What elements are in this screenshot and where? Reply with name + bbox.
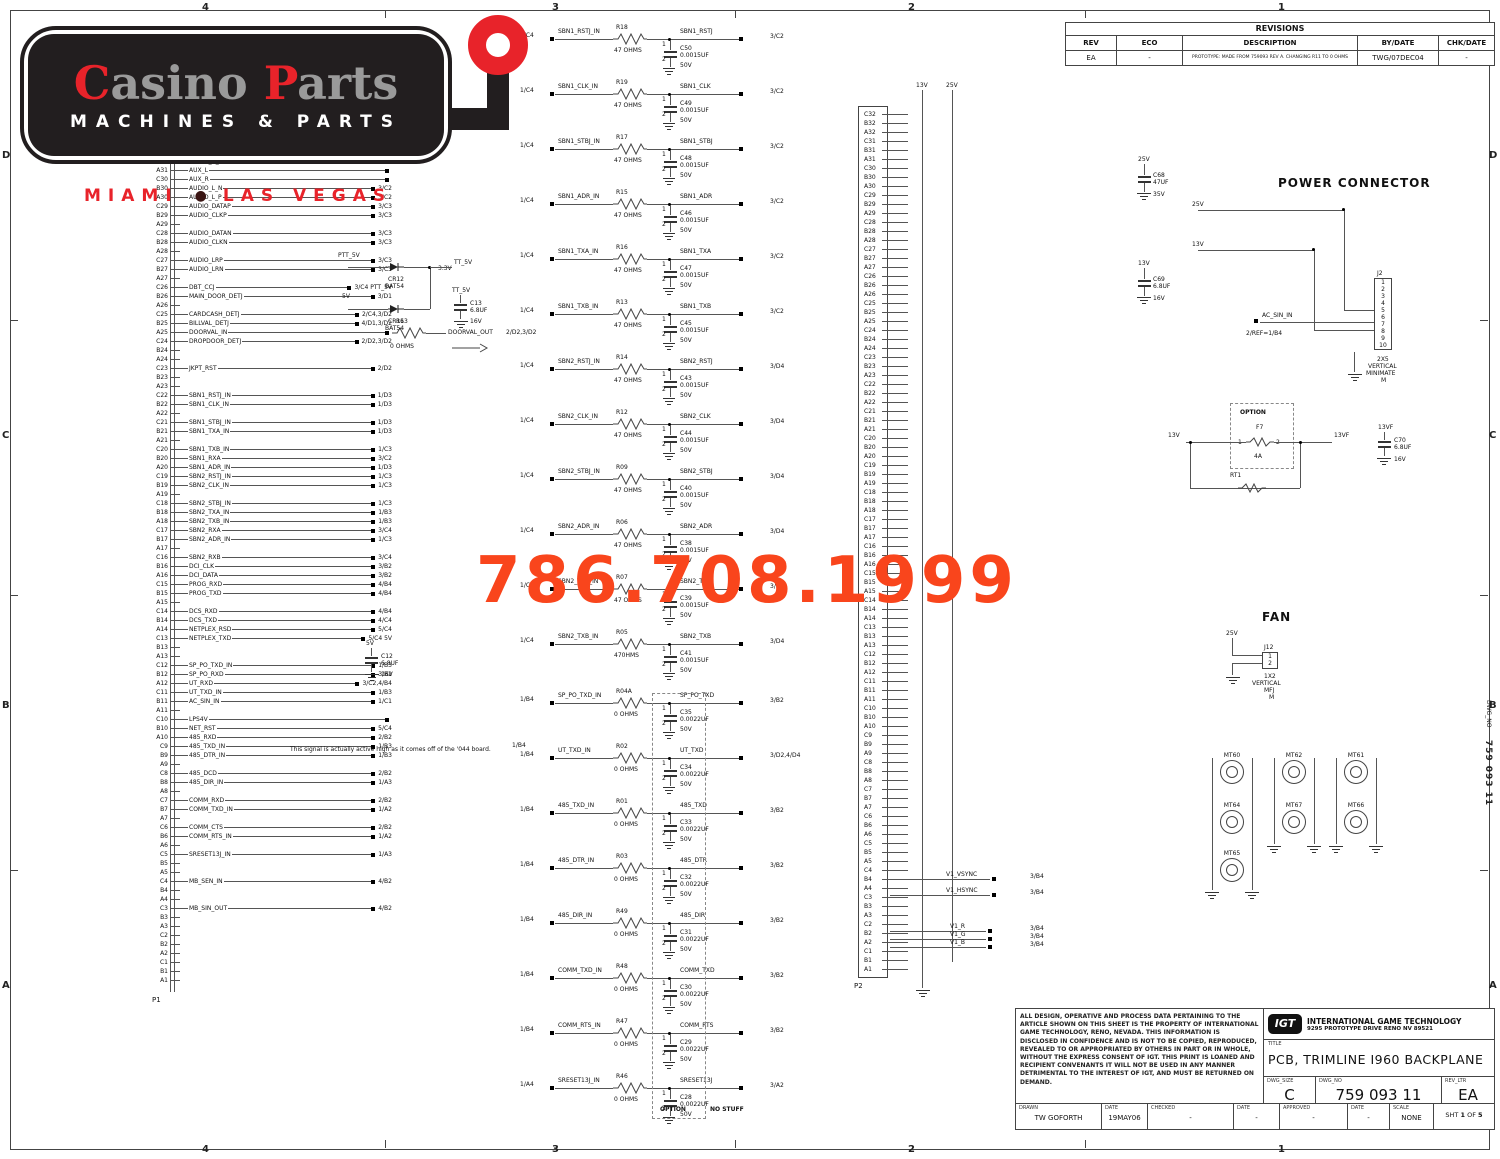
zone-tick [10,870,18,871]
wire [180,260,188,261]
pin-number: 6 [1375,314,1391,321]
wire [555,1033,613,1034]
resistor-ref: R09 [616,464,628,471]
pad-icon [739,1086,743,1090]
signal-label: DCI_CLK [188,563,215,570]
pin-number: 1 [662,426,666,433]
zone-ref: 1/A3 [378,779,392,786]
resistor-icon [613,308,647,320]
pin-label: C10 [150,716,168,723]
pin-row: B2 [150,940,392,949]
pin-label: B18 [862,498,882,505]
zone-ref: 1/D3 [378,428,392,435]
cap-value: 0.0015UF [680,437,709,444]
pin-label: C32 [862,111,882,118]
pad-icon [371,430,375,434]
cap-voltage: 16V [381,671,393,678]
zone-ref: 1/B4 [520,696,534,703]
pin-row: C1 [150,958,392,967]
cap-voltage: 35V [1153,191,1165,198]
wire [170,404,180,405]
pin-label: A16 [150,572,168,579]
wire [180,368,188,369]
wire [882,537,908,538]
signal-wire: SBN2_RXB 3/C4 [180,553,392,562]
signal-label: DOORVAL_OUT [448,329,493,336]
ground-icon [454,321,468,330]
pin-label: B21 [150,428,168,435]
bullet-icon: ● [195,188,207,204]
pad-icon [550,1031,554,1035]
signal-label: DCS_TXD [188,617,218,624]
wire [170,602,180,603]
signal-label: AUDIO_LRP [188,257,224,264]
pin-label: C27 [862,246,882,253]
pin-label: A22 [150,410,168,417]
wire [180,593,188,594]
zone-ref: 3/B2 [770,807,784,814]
zone-ref: 1/D3 [378,392,392,399]
zone-ref: 3/B2 [770,917,784,924]
cap-ref: C50 [680,45,692,52]
wire [670,95,671,105]
pad-icon [550,976,554,980]
signal-label: AC_SIN_IN [188,698,221,705]
wire [180,170,188,171]
signal-label: SBN1_CLK_IN [558,83,598,90]
wire [219,611,372,612]
diode-ref: CR12 [388,276,404,283]
pin-label: C5 [862,840,882,847]
pin-label: A19 [150,491,168,498]
pin-label: C22 [862,381,882,388]
pin-label: C3 [150,905,168,912]
wire [180,233,188,234]
signal-wire: AC_SIN_IN 1/C1 [180,697,392,706]
pin-row: A14 NETPLEX_RSD 5/C4 [150,625,392,634]
pin-row: A27 [150,274,392,283]
pin-label: B28 [862,228,882,235]
ground-icon [1307,846,1321,855]
zone-ref: 4/B4 [378,581,392,588]
pad-icon [371,691,375,695]
pin-row: B28 [862,227,922,236]
signal-wire: DCS_TXD 4/C4 [180,616,392,625]
wire [170,746,180,747]
pin-number: 8 [1375,328,1391,335]
zone-ref: 1/B4 [520,861,534,868]
wire [882,195,908,196]
pin-label: B22 [862,390,882,397]
signal-label: COMM_RTS_IN [558,1022,601,1029]
pin-row: C24 [862,326,922,335]
pin-label: B12 [862,660,882,667]
pin-number: 3 [1375,293,1391,300]
signal-label: SBN1_ADR_IN [188,464,231,471]
pin-row: B11 AC_SIN_IN 1/C1 [150,697,392,706]
pin-number: 1 [662,41,666,48]
signal-wire: 485_DCD 2/B2 [180,769,392,778]
zone-ref: 1/C4 [520,472,534,479]
pin-label: C9 [150,743,168,750]
wire [225,269,372,270]
wire [882,456,908,457]
signal-label: AUDIO_CLKP [188,212,228,219]
wire [882,384,908,385]
pin-label: A19 [862,480,882,487]
pin-row: B19 [862,470,922,479]
net-label: 13V [1138,260,1150,267]
wire [170,971,180,972]
cap-voltage: 50V [680,227,692,234]
wire [180,719,188,720]
pin-row: C21 [862,407,922,416]
wire [242,341,354,342]
pin-label: C16 [150,554,168,561]
wire [647,149,739,150]
wire [170,170,180,171]
pin-label: C20 [862,435,882,442]
pin-label: B1 [862,957,882,964]
resistor-icon [613,143,647,155]
wire [180,575,188,576]
pin-row: A21 [150,436,392,445]
wire [555,978,613,979]
pin-label: C21 [150,419,168,426]
wire [882,870,908,871]
wire [170,476,180,477]
pin-label: B27 [150,266,168,273]
pin-label: B18 [150,509,168,516]
pad-icon [371,853,375,857]
pin-label: B12 [150,671,168,678]
zone-ref: 1/C4 [520,142,534,149]
pin-label: A8 [862,777,882,784]
cap-ref: C69 [1153,276,1165,283]
wire [231,539,371,540]
pin-row: B7 [862,794,922,803]
pin-number: 2 [662,331,666,338]
pin-label: A20 [862,453,882,460]
pad-icon [371,457,375,461]
wire [882,618,908,619]
wire [229,242,372,243]
resistor-icon [613,88,647,100]
pin-label: C15 [150,581,168,588]
resistor-ref: R03 [616,853,628,860]
wire [180,323,188,324]
signal-wire: SBN2_RSTJ_IN 1/C3 [180,472,392,481]
wire [221,701,372,702]
wire [232,476,371,477]
wire [647,259,739,260]
rail-label: 13V [916,82,928,89]
pad-icon [355,682,359,686]
wire [170,800,180,801]
zone-row: C [2,430,9,441]
zone-ref: 1/B3 [378,509,392,516]
wire [170,431,180,432]
wire [170,593,180,594]
wire [180,620,188,621]
wire [882,474,908,475]
signal-label: V1_B [950,939,965,946]
signal-label: MB_SEN_IN [188,878,224,885]
resistor-value: 47 OHMS [614,377,642,384]
wire [180,629,188,630]
wire [170,719,180,720]
signal-label: SBN1_ADR_IN [558,193,599,200]
signal-label: SBN2_RXA [188,527,222,534]
rail-label: 13VF [1334,432,1349,439]
wire [555,39,613,40]
pin-row: B17 SBN2_ADR_IN 1/C3 [150,535,392,544]
pad-icon [371,511,375,515]
wire [1232,663,1262,664]
wire [882,366,908,367]
pin-label: C24 [862,327,882,334]
pad-icon [371,484,375,488]
pin-label: C7 [862,786,882,793]
wire [1314,330,1374,331]
pad-icon [739,477,743,481]
pin-label: B21 [862,417,882,424]
wire [170,269,180,270]
signal-label: CARDCASH_DETJ [188,311,241,318]
wire [882,771,908,772]
pin-label: B24 [150,347,168,354]
pin-row: B13 [150,643,392,652]
signal-label: SBN2_TXB [680,633,711,640]
pin-row: C26 [862,272,922,281]
wire [670,205,671,215]
wire [180,683,188,684]
cap-ref: C68 [1153,172,1165,179]
resistor-ref: R46 [616,1073,628,1080]
pin-label: A7 [150,815,168,822]
schematic-sheet: 4 3 2 1 4 3 2 1 D C B A D C B A DWG_NO 7… [0,0,1500,1159]
pad-icon [371,700,375,704]
wire [223,593,372,594]
pad-icon [371,628,375,632]
pin-number: 2 [662,661,666,668]
pin-label: B25 [150,320,168,327]
mount-hole: MT64 [1210,802,1254,834]
pin-row: B19 SBN2_CLK_IN 1/C3 [150,481,392,490]
ground-icon [663,288,675,297]
wire [555,314,613,315]
cap-ref: C45 [680,320,692,327]
wire [882,249,908,250]
pin-row: A11 [862,695,922,704]
diode-type: BAT54 [385,283,404,290]
pad-icon [371,574,375,578]
resistor-value: 47 OHMS [614,322,642,329]
wire [882,861,908,862]
pin-number: 2 [662,496,666,503]
pin-row: C26 DBT_CCJ 3/C4 PTT_5V [150,283,392,292]
pin-label: A32 [862,129,882,136]
wire [232,629,371,630]
wire [170,368,180,369]
pad-icon [371,241,375,245]
wire [170,494,180,495]
zone-ref: 1/B4 [520,916,534,923]
wire [170,278,180,279]
rc-filter-row: 1/C4 SBN1_RSTJ_IN R18 47 OHMS SBN1_RSTJ … [520,24,812,79]
company-address: 9295 PROTOTYPE DRIVE RENO NV 89521 [1307,1026,1461,1032]
wire [170,413,180,414]
pin-label: A8 [150,788,168,795]
rail-label: 13V [1168,432,1180,439]
cap-ref: C43 [680,375,692,382]
pin-label: A13 [862,642,882,649]
signal-label: SBN1_TXA_IN [188,428,230,435]
signal-wire: MB_SIN_OUT 4/B2 [180,904,392,913]
pad-icon [371,808,375,812]
pin-label: B26 [862,282,882,289]
zone-tick [10,595,18,596]
pad-icon [988,945,992,949]
pad-icon [550,257,554,261]
zone-col: 3 [552,2,559,13]
checked-cell: CHECKED - [1148,1104,1234,1130]
cities-line: MIAMI ● LAS VEGAS [84,186,392,206]
pin-row: B4 [150,886,392,895]
pad-icon [550,477,554,481]
zone-ref: 3/D2,4/D4 [770,752,800,759]
revisions-header: REV ECO DESCRIPTION BY/DATE CHK/DATE [1065,35,1495,50]
resistor-value: 0 OHMS [614,1096,638,1103]
signal-wire: NETPLEX_TXD 5/C4 5V [180,634,392,643]
ground-icon [1137,193,1151,202]
pin-row: C23 [862,353,922,362]
wire [170,575,180,576]
resistor-ref: R14 [616,354,628,361]
pad-icon [371,610,375,614]
wire [180,431,188,432]
wire [170,935,180,936]
signal-wire: LPS4V [180,715,392,724]
wire [882,735,908,736]
signal-label: SBN2_RSTJ [680,358,713,365]
wire [170,755,180,756]
pin-number: 2 [662,276,666,283]
signal-label: 485_TXD_IN [188,743,226,750]
title-cell: TITLE PCB, TRIMLINE I960 BACKPLANE [1264,1040,1494,1077]
pin-label: B22 [150,401,168,408]
wire [922,90,923,988]
rc-filter-row: 1/C4 SBN1_TXA_IN R16 47 OHMS SBN1_TXA 3/… [520,244,812,299]
zone-ref: 3/D4 [770,363,784,370]
pin-label: A11 [150,707,168,714]
pin-row: B13 [862,632,922,641]
pin-label: A23 [862,372,882,379]
junction-dot [1312,248,1315,251]
wire [882,663,908,664]
pin-label: A6 [862,831,882,838]
pin-label: B28 [150,239,168,246]
pin-row: A29 [862,209,922,218]
wire [170,467,180,468]
wire [170,206,180,207]
pin-label: A24 [862,345,882,352]
wire [882,528,908,529]
pin-number: 1 [662,96,666,103]
wire [219,575,371,576]
pin-row: C1 [862,947,922,956]
signal-label: AUDIO_CLKN [188,239,229,246]
pin-number: 2 [662,221,666,228]
zone-tick [1480,320,1488,321]
wire [1144,183,1145,192]
pin-row: A5 [150,868,392,877]
pin-number: 1 [662,371,666,378]
pin-row: C22 SBN1_RSTJ_IN 1/D3 [150,391,392,400]
pin-row: B25 BILLVAL_DETJ 4/D1,3/D2 [150,319,392,328]
pin-row: A31 AUX_L [150,166,392,175]
pin-row: B5 [150,859,392,868]
rail-label: 25V [946,82,958,89]
cap-voltage: 50V [680,172,692,179]
ground-icon [663,453,675,462]
wire [404,309,430,310]
wire [217,728,372,729]
pin-label: C7 [150,797,168,804]
zone-row: A [1489,980,1497,991]
cap-value: 0.0015UF [680,382,709,389]
cap-voltage: 50V [680,667,692,674]
wire [170,710,180,711]
wire [882,636,908,637]
pad-icon [371,826,375,830]
rc-filter-row: 1/C4 SBN1_STBJ_IN R17 47 OHMS SBN1_STBJ … [520,134,812,189]
wire [430,267,452,268]
wire [882,627,908,628]
pin-row: A18 [862,506,922,515]
pin-label: C23 [150,365,168,372]
pin-label: C26 [862,273,882,280]
zone-ref: 2/REF=1/B4 [1246,330,1282,337]
pin-label: B14 [150,617,168,624]
connector-name: J12 [1264,644,1273,651]
wire [233,836,372,837]
zone-ref: 1/C3 [378,500,392,507]
zone-ref: 1/C4 [520,527,534,534]
pin-row: B11 [862,686,922,695]
wire [170,251,180,252]
signal-wire: UT_TXD_IN 1/B3 [180,688,392,697]
pin-label: B11 [150,698,168,705]
pin-row: B10 NET_RST 5/C4 [150,724,392,733]
casino-parts-logo: Casino Parts MACHINES & PARTS [20,26,452,164]
pin-label: A31 [150,167,168,174]
zone-ref: 1/B4 [520,806,534,813]
cap-ref: C40 [680,485,692,492]
wire [460,295,461,303]
mount-hole: MT67 [1272,802,1316,834]
resistor-icon [613,1027,647,1039]
pin-row: B25 [862,308,922,317]
pad-icon [371,448,375,452]
company-name: INTERNATIONAL GAME TECHNOLOGY [1307,1017,1461,1026]
connector-gender: M [1269,694,1274,701]
pad-icon [739,921,743,925]
wire [180,458,188,459]
wire [232,854,372,855]
zone-ref: 1/C4 [520,252,534,259]
pin-label: C19 [862,462,882,469]
